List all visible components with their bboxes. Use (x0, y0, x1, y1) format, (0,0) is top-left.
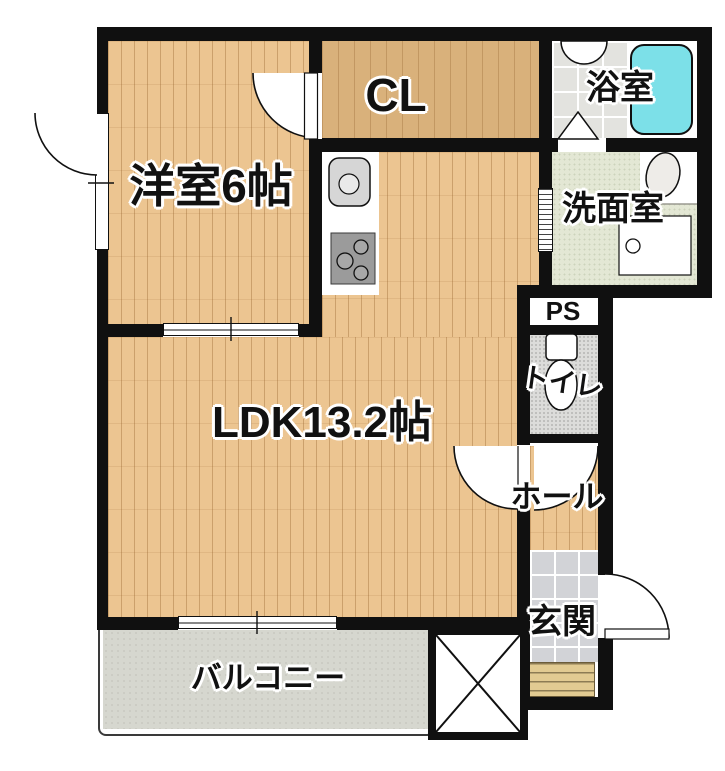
accordion-door-washroom (538, 188, 553, 252)
room-label-pipe-space: PS (546, 298, 581, 324)
entrance-door-swing (605, 574, 669, 638)
room-label-ldk: LDK13.2帖 (212, 401, 432, 445)
closet-floor (322, 41, 539, 138)
room-label-bedroom: 洋室6帖 (129, 163, 293, 209)
wall-segment (309, 139, 322, 337)
entrance-steps (522, 662, 595, 697)
room-label-hall: ホール (511, 482, 604, 513)
room-label-balcony: バルコニー (191, 663, 345, 694)
room-label-closet: CL (365, 72, 426, 118)
wall-segment (517, 697, 613, 710)
entrance-door-arc (605, 574, 669, 638)
floorplan-canvas: 洋室6帖 CL 浴室 洗面室 PS トイレ LDK13.2帖 ホール 玄関 バル… (0, 0, 725, 771)
entrance-door-leaf (605, 629, 669, 639)
wall-segment (309, 27, 322, 73)
void-box (428, 627, 528, 740)
bedroom-window-arc (35, 113, 97, 175)
wall-segment (530, 434, 598, 443)
wall-segment (517, 325, 613, 335)
bedroom-window (95, 113, 109, 250)
wall-segment (539, 27, 552, 188)
wall-segment (697, 27, 712, 298)
ldk-floor (108, 337, 517, 617)
wall-segment (322, 138, 558, 152)
bedroom-window-swing (35, 113, 97, 175)
ldk-floor-mid (322, 298, 517, 337)
kitchen-counter (322, 152, 379, 295)
sliding-door-bedroom-ldk (163, 323, 299, 336)
wall-segment (97, 324, 163, 337)
room-label-bathroom: 浴室 (586, 71, 654, 105)
room-label-entrance: 玄関 (528, 605, 596, 639)
room-label-washroom: 洗面室 (562, 192, 664, 226)
wall-segment (97, 27, 712, 41)
wall-segment (97, 27, 108, 113)
balcony-window (178, 616, 337, 629)
wall-segment (97, 250, 108, 630)
wall-segment (97, 617, 178, 630)
